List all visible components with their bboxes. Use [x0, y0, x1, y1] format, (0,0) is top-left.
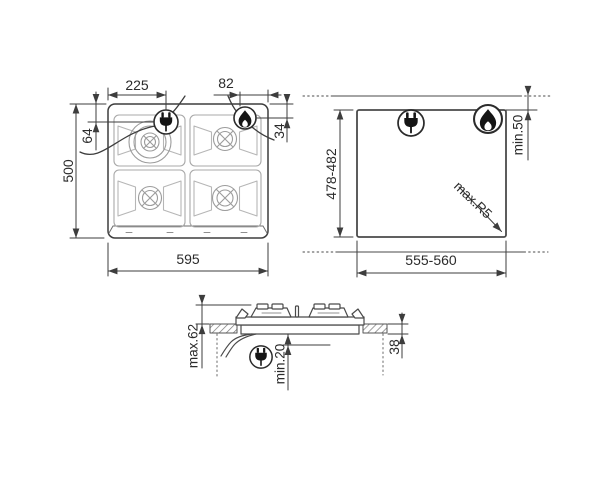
- dim-clearance-below-label: min.20: [273, 344, 288, 385]
- dim-plug-offset-y-label: 64: [79, 128, 95, 144]
- pan-support-profile: [251, 304, 348, 317]
- dim-rear-clearance-label: min.50: [511, 115, 526, 156]
- worktop-left: [210, 324, 237, 333]
- dim-height-above-label: max.62: [186, 324, 201, 368]
- installation-diagram-page: 225 82 64 34: [0, 0, 600, 481]
- hob-tub: [241, 325, 359, 334]
- dim-clearance-below: min.20: [273, 334, 331, 390]
- dim-depth-500: 500: [60, 104, 104, 238]
- flame-icon: [234, 107, 256, 129]
- hob-top-view: 225 82 64 34: [60, 75, 293, 276]
- plug-icon: [398, 110, 424, 136]
- dim-width-595-label: 595: [176, 251, 200, 267]
- igniter: [296, 306, 299, 317]
- hob-rim-right: [352, 309, 364, 318]
- dim-recess-depth: 38: [386, 313, 408, 358]
- diagram-canvas: 225 82 64 34: [0, 0, 600, 481]
- dim-recess-depth-label: 38: [386, 339, 402, 355]
- dim-depth-500-label: 500: [60, 159, 76, 183]
- hob-rim-left: [236, 309, 248, 318]
- hob-top-sheet: [236, 317, 364, 325]
- plug-icon: [250, 346, 272, 368]
- plug-icon: [154, 110, 178, 134]
- dim-width-595: 595: [108, 243, 268, 276]
- dim-plug-offset-x-label: 225: [125, 77, 149, 93]
- dim-cutout-width: 555-560: [357, 241, 506, 277]
- dim-flame-offset-x-label: 82: [218, 75, 234, 91]
- section-view: max.62 min.20 38: [186, 297, 409, 390]
- dim-rear-clearance: min.50: [506, 88, 537, 160]
- dim-flame-offset-x: 82: [214, 75, 281, 106]
- dim-cutout-depth-label: 478-482: [323, 148, 339, 200]
- worktop-right: [363, 324, 387, 333]
- flame-icon: [474, 105, 502, 133]
- dim-cutout-depth: 478-482: [323, 110, 353, 237]
- dim-flame-offset-y-label: 34: [271, 123, 287, 139]
- cutout-view: 478-482 555-560 min.50 max.R5: [303, 88, 552, 277]
- dim-cutout-width-label: 555-560: [405, 252, 457, 268]
